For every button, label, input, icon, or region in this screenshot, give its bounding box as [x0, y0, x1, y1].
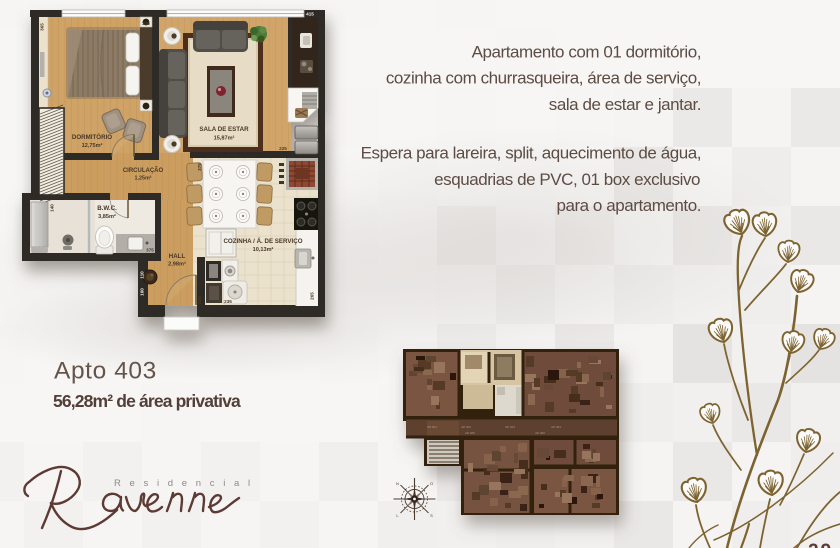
svg-text:AP 406: AP 406 — [535, 431, 545, 435]
svg-text:AP 401: AP 401 — [427, 425, 437, 429]
svg-text:335: 335 — [142, 21, 150, 26]
svg-text:215: 215 — [197, 296, 202, 304]
svg-text:140: 140 — [50, 204, 55, 212]
svg-text:56,28m² de área privativa: 56,28m² de área privativa — [53, 391, 241, 411]
svg-text:Espera para lareira, split, aq: Espera para lareira, split, aquecimento … — [361, 144, 701, 163]
svg-text:HALL: HALL — [169, 253, 186, 260]
svg-text:375: 375 — [146, 248, 154, 253]
svg-text:B.W.C.: B.W.C. — [97, 205, 117, 212]
svg-text:3,85m²: 3,85m² — [98, 213, 116, 220]
svg-text:225: 225 — [279, 146, 287, 151]
svg-text:415: 415 — [306, 12, 314, 17]
svg-text:365: 365 — [40, 23, 45, 31]
svg-text:AP 404: AP 404 — [551, 425, 561, 429]
svg-text:Residencial: Residencial — [114, 478, 259, 489]
svg-text:1,25m²: 1,25m² — [134, 176, 151, 182]
svg-text:COZINHA / Á. DE SERVIÇO: COZINHA / Á. DE SERVIÇO — [223, 238, 302, 245]
svg-text:AP 402: AP 402 — [461, 425, 471, 429]
svg-text:15,87m²: 15,87m² — [214, 135, 235, 142]
svg-text:DORMITÓRIO: DORMITÓRIO — [72, 133, 112, 141]
svg-text:2,98m²: 2,98m² — [168, 261, 186, 268]
svg-text:N: N — [396, 481, 399, 486]
svg-text:SALA DE ESTAR: SALA DE ESTAR — [199, 126, 249, 133]
svg-text:375: 375 — [197, 163, 202, 171]
svg-text:265: 265 — [310, 292, 315, 300]
svg-text:Apartamento com 01 dormitório,: Apartamento com 01 dormitório, — [472, 42, 701, 61]
svg-text:Apto 403: Apto 403 — [54, 357, 157, 384]
svg-text:29: 29 — [808, 541, 833, 548]
svg-text:CIRCULAÇÃO: CIRCULAÇÃO — [123, 167, 164, 174]
svg-text:S: S — [430, 513, 433, 518]
svg-text:O: O — [430, 481, 433, 486]
svg-text:235: 235 — [224, 299, 232, 304]
svg-text:para o apartamento.: para o apartamento. — [556, 196, 701, 215]
svg-text:10,13m²: 10,13m² — [253, 246, 274, 253]
svg-text:110: 110 — [140, 271, 145, 279]
svg-text:160: 160 — [140, 288, 145, 296]
svg-text:AP 403: AP 403 — [505, 425, 515, 429]
svg-text:12,75m²: 12,75m² — [82, 142, 103, 149]
svg-text:sala de estar e jantar.: sala de estar e jantar. — [549, 95, 701, 114]
svg-text:AP 405: AP 405 — [465, 431, 475, 435]
svg-text:cozinha com churrasqueira, áre: cozinha com churrasqueira, área de servi… — [386, 69, 701, 88]
svg-text:esquadrias de PVC, 01 box excl: esquadrias de PVC, 01 box exclusivo — [434, 170, 700, 189]
